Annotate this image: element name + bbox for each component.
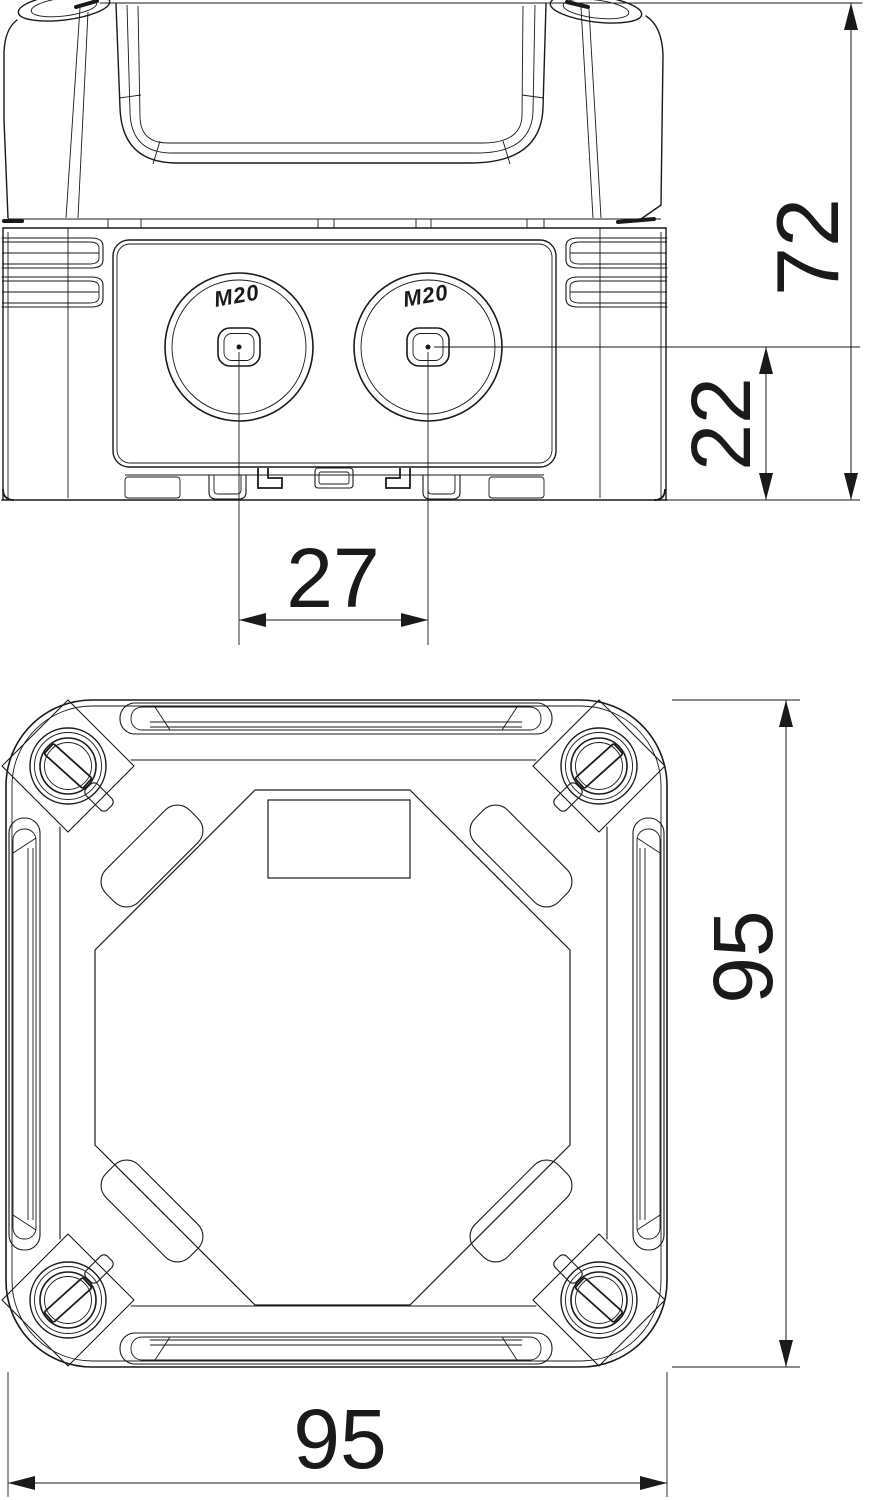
dimension-overall-height-label: 72	[758, 198, 857, 296]
lid-recess	[116, 4, 546, 164]
seal-channel-left	[9, 818, 40, 1250]
dimension-overall-depth-label: 95	[696, 910, 790, 1003]
dimension-entry-spacing: 27	[239, 531, 428, 627]
lid-screw-pod-left	[17, 0, 111, 26]
arrow-right-icon	[401, 613, 428, 627]
lid	[3, 0, 862, 228]
seal-channel-right	[633, 818, 664, 1250]
knockout-label-right: M20	[401, 279, 450, 312]
dimension-overall-height: 72	[758, 3, 858, 500]
arrow-up-icon	[844, 3, 858, 30]
plan-view: 95 95	[2, 700, 800, 1497]
arrow-up-icon	[759, 347, 773, 374]
corner-screw-top-right	[533, 700, 665, 832]
technical-drawing-page: M20 M20	[0, 0, 869, 1500]
arrow-down-icon	[759, 473, 773, 500]
screw-slot-edge-icon	[76, 1, 97, 7]
arrow-left-icon	[8, 1476, 35, 1490]
side-flange-right	[566, 238, 667, 307]
label-field	[268, 800, 410, 878]
arrow-up-icon	[779, 700, 793, 727]
lid-left-edge	[4, 20, 17, 218]
corner-screw-bottom-right	[533, 1234, 665, 1366]
dimension-entry-spacing-label: 27	[286, 531, 379, 625]
seal-channel-top	[120, 703, 552, 734]
corner-screw-bottom-left	[2, 1234, 134, 1366]
corner-screw-top-left	[2, 700, 134, 832]
knockout-label-left: M20	[212, 279, 261, 312]
body-front-panel	[113, 240, 556, 467]
dimension-entry-center-height-label: 22	[674, 377, 768, 470]
lid-screw-pod-right	[549, 0, 643, 28]
parting-line	[3, 219, 666, 228]
dimension-overall-depth: 95	[672, 700, 800, 1367]
lid-right-edge	[641, 16, 663, 219]
dimension-overall-width: 95	[8, 1372, 667, 1497]
arrow-down-icon	[779, 1340, 793, 1367]
arrow-down-icon	[844, 473, 858, 500]
seal-channel-bottom	[120, 1333, 552, 1364]
bottom-mounting-features	[125, 468, 544, 499]
arrow-left-icon	[239, 613, 266, 627]
arrow-right-icon	[640, 1476, 667, 1490]
dimension-overall-width-label: 95	[293, 1392, 386, 1486]
side-view: M20 M20	[2, 0, 862, 645]
technical-drawing: M20 M20	[0, 0, 869, 1500]
side-flange-left	[2, 238, 103, 307]
